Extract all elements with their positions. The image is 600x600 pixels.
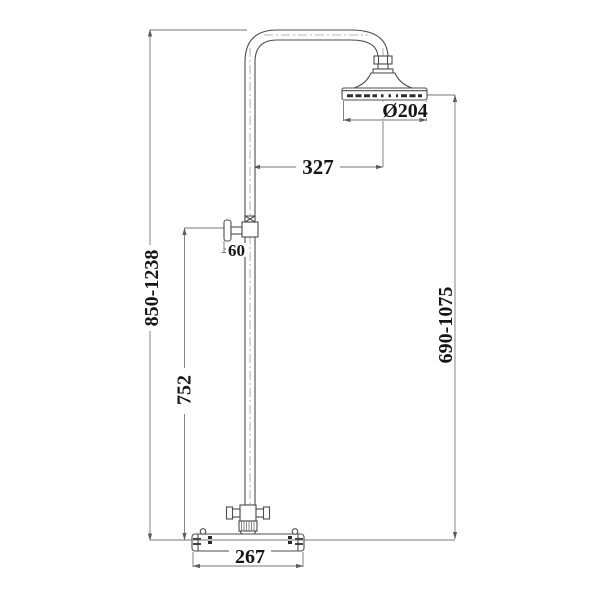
arrow-right: [376, 165, 384, 169]
head-flange: [373, 69, 393, 73]
bracket-offset-label: 60: [228, 241, 245, 260]
valve-right-mark-top: [288, 536, 292, 539]
riser-height-label: 752: [174, 375, 196, 405]
wall-bracket: [224, 216, 258, 241]
arrow-down: [453, 532, 457, 540]
diverter-right-cap: [264, 507, 270, 519]
arrow-down: [182, 533, 186, 541]
head-to-valve-label: 690-1075: [435, 287, 457, 364]
centerlines: [250, 35, 383, 531]
head-disc: [342, 88, 427, 100]
head-connector-nut: [374, 56, 392, 64]
diverter-right-stem: [256, 509, 264, 517]
bracket-wall-flange: [224, 220, 231, 241]
arm-reach-label: 327: [302, 155, 334, 179]
diverter-assembly: [227, 505, 270, 536]
bracket-clamp: [242, 222, 258, 237]
valve-left-mark-bottom: [208, 541, 212, 544]
dimension-labels: 850-1238 752 690-1075 327 Ø204 60 267: [141, 100, 457, 568]
arrow-right: [296, 564, 304, 568]
overall-height-label: 850-1238: [141, 250, 163, 327]
valve-left-mark-top: [208, 536, 212, 539]
bracket-arm: [231, 227, 242, 234]
diverter-left-cap: [227, 507, 233, 519]
diverter-body: [240, 505, 256, 521]
arrow-up: [182, 228, 186, 236]
shower-head: [342, 56, 427, 100]
valve-width-label: 267: [235, 546, 265, 568]
head-diameter-label: Ø204: [382, 100, 428, 122]
head-stem: [378, 64, 388, 69]
technical-drawing-page: 850-1238 752 690-1075 327 Ø204 60 267: [0, 0, 600, 600]
head-bell-cone: [354, 73, 412, 88]
valve-right-mark-bottom: [288, 541, 292, 544]
arrow-left: [343, 118, 351, 122]
arrow-up: [453, 95, 457, 103]
valve-left-button: [200, 529, 206, 535]
valve-right-button: [292, 529, 298, 535]
riser-and-arm-pipe: [245, 30, 388, 512]
diverter-left-stem: [232, 509, 240, 517]
technical-drawing-canvas: 850-1238 752 690-1075 327 Ø204 60 267: [0, 0, 600, 600]
arrow-left: [193, 564, 201, 568]
